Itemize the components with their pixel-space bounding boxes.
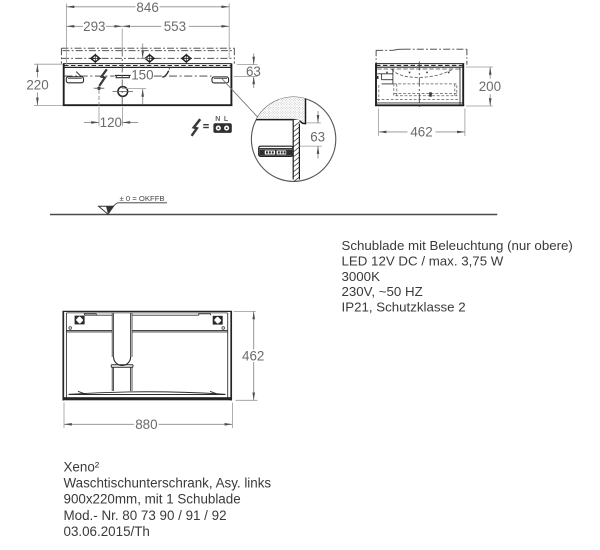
svg-text:3000K: 3000K [342, 269, 381, 284]
svg-text:63: 63 [246, 64, 261, 79]
svg-text:200: 200 [479, 79, 501, 94]
svg-text:Xeno²: Xeno² [64, 460, 100, 475]
svg-text:N: N [215, 116, 220, 123]
svg-text:L: L [224, 116, 229, 123]
svg-text:120: 120 [100, 115, 122, 130]
svg-text:220: 220 [26, 78, 48, 93]
svg-text:03.06.2015/Th: 03.06.2015/Th [64, 524, 150, 539]
svg-text:553: 553 [164, 19, 186, 34]
svg-text:Schublade mit Beleuchtung (nur: Schublade mit Beleuchtung (nur obere) [342, 238, 573, 253]
svg-text:230V, ~50 HZ: 230V, ~50 HZ [342, 284, 423, 299]
svg-text:Waschtischunterschrank, Asy. l: Waschtischunterschrank, Asy. links [64, 476, 272, 491]
svg-text:63: 63 [310, 129, 325, 144]
svg-text:± 0 = OKFFB: ± 0 = OKFFB [120, 194, 165, 203]
svg-text:IP21, Schutzklasse 2: IP21, Schutzklasse 2 [342, 299, 466, 314]
svg-text:880: 880 [135, 417, 157, 432]
svg-text:462: 462 [242, 348, 264, 363]
svg-text:846: 846 [136, 0, 158, 15]
svg-text:LED 12V DC / max. 3,75 W: LED 12V DC / max. 3,75 W [342, 254, 504, 269]
svg-text:293: 293 [83, 19, 105, 34]
svg-text:462: 462 [410, 124, 432, 139]
svg-text:900x220mm, mit 1 Schublade: 900x220mm, mit 1 Schublade [64, 492, 241, 507]
svg-text:150: 150 [131, 67, 153, 82]
svg-text:Mod.- Nr. 80 73 90 / 91 / 92: Mod.- Nr. 80 73 90 / 91 / 92 [64, 508, 227, 523]
